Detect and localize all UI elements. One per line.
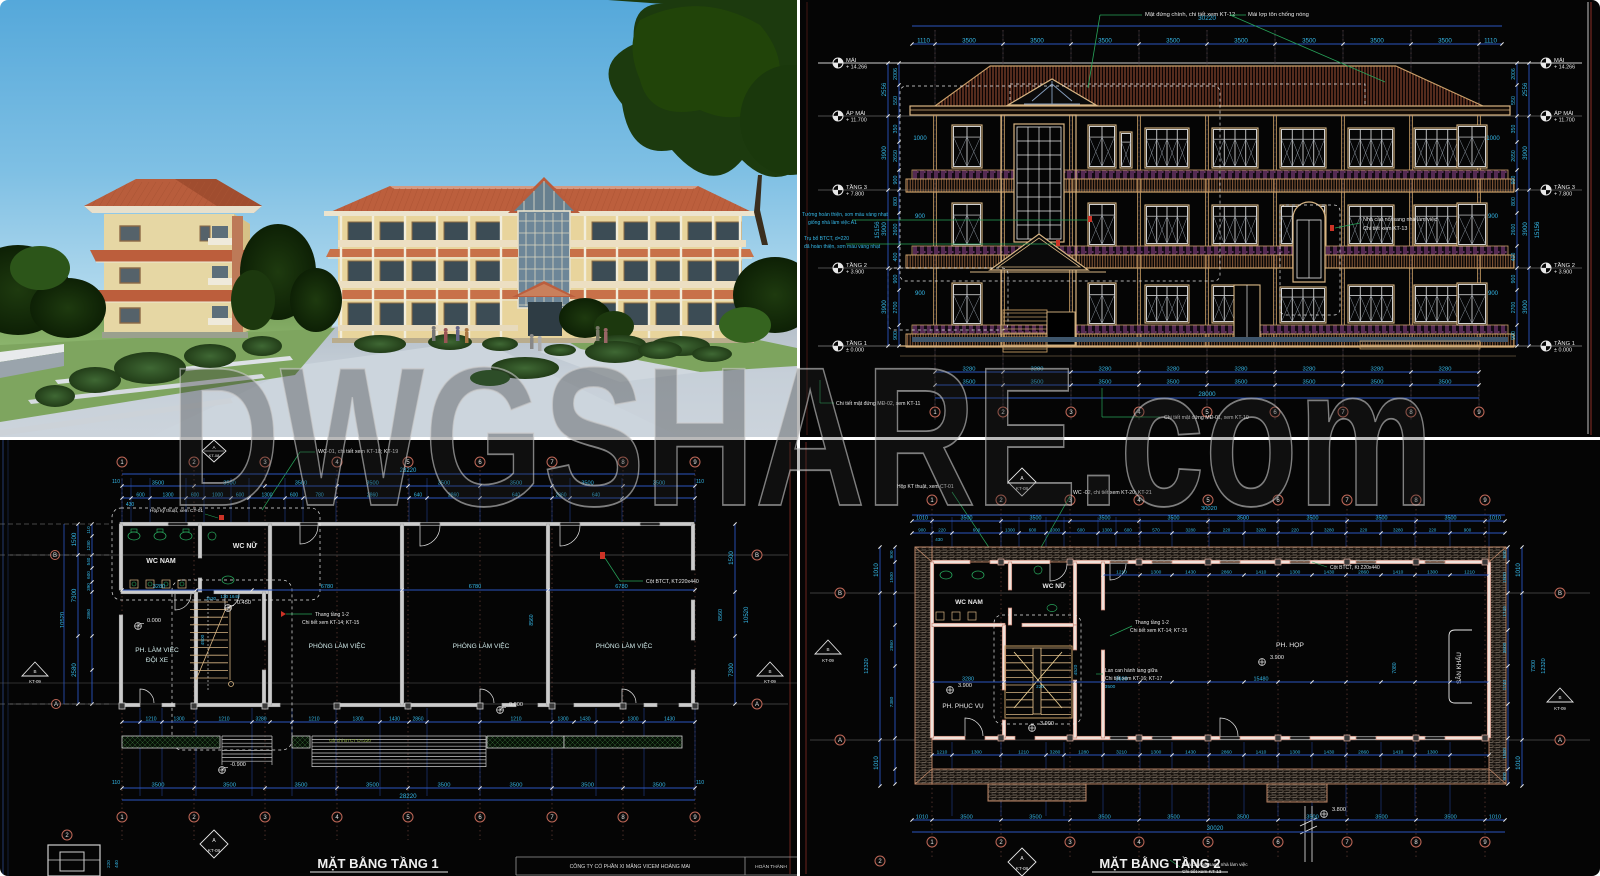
svg-text:DWGSHARE.com: DWGSHARE.com <box>170 327 1434 548</box>
